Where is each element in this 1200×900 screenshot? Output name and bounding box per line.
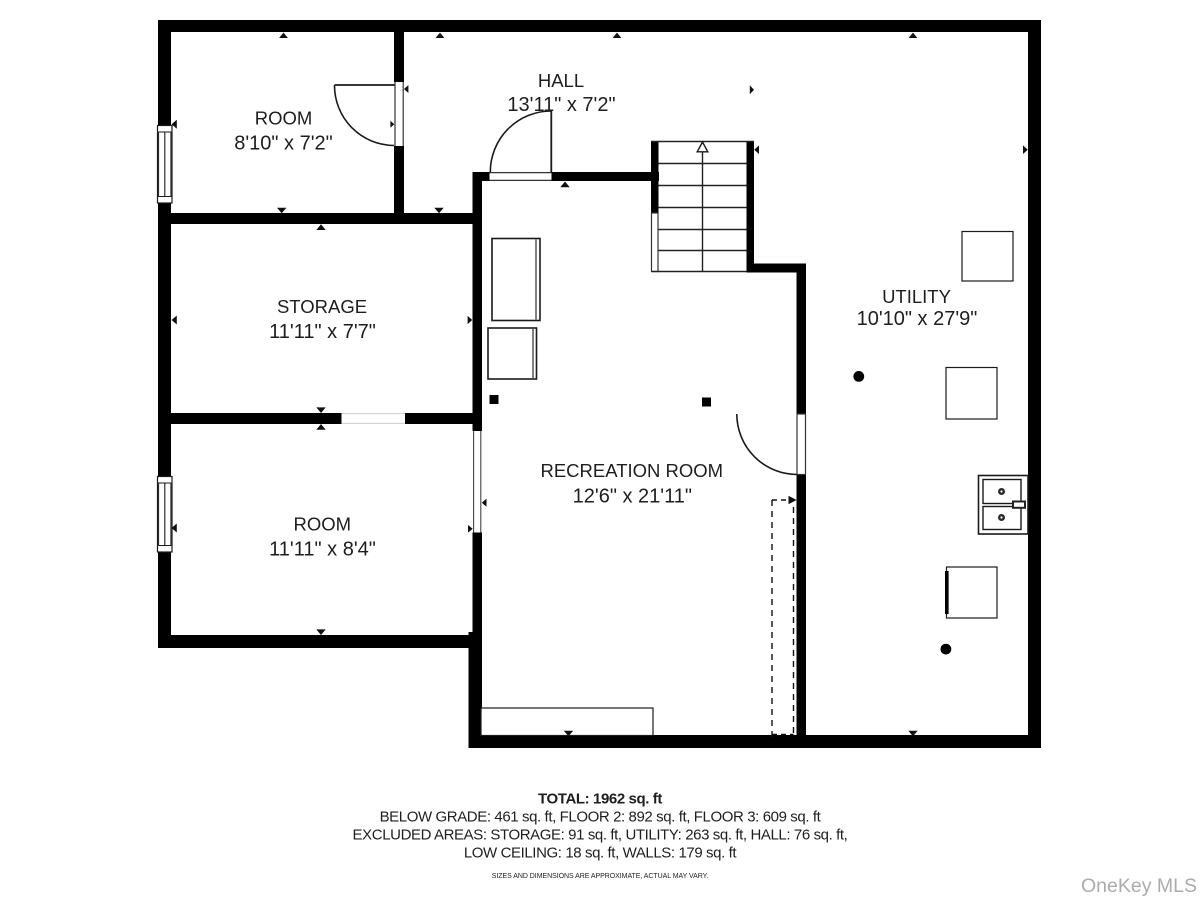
svg-text:BELOW GRADE: 461 sq. ft, FLOOR: BELOW GRADE: 461 sq. ft, FLOOR 2: 892 sq… (380, 809, 822, 826)
svg-text:11'11" x 7'7": 11'11" x 7'7" (269, 321, 376, 343)
svg-text:ROOM: ROOM (255, 108, 313, 129)
svg-text:8'10" x 7'2": 8'10" x 7'2" (234, 133, 333, 155)
svg-text:11'11" x 8'4": 11'11" x 8'4" (269, 538, 376, 560)
svg-text:10'10" x 27'9": 10'10" x 27'9" (857, 308, 978, 330)
svg-text:12'6" x 21'11": 12'6" x 21'11" (573, 485, 692, 507)
svg-text:LOW CEILING: 18 sq. ft, WALLS:: LOW CEILING: 18 sq. ft, WALLS: 179 sq. f… (464, 845, 738, 862)
svg-text:ROOM: ROOM (294, 514, 352, 535)
svg-text:13'11" x 7'2": 13'11" x 7'2" (507, 94, 615, 116)
svg-text:HALL: HALL (538, 70, 584, 91)
svg-text:UTILITY: UTILITY (882, 286, 951, 307)
svg-text:STORAGE: STORAGE (277, 296, 367, 317)
svg-text:OneKey MLS: OneKey MLS (1081, 875, 1197, 897)
svg-text:RECREATION ROOM: RECREATION ROOM (540, 460, 723, 481)
svg-text:TOTAL: 1962 sq. ft: TOTAL: 1962 sq. ft (538, 791, 662, 808)
svg-text:EXCLUDED AREAS: STORAGE: 91 sq: EXCLUDED AREAS: STORAGE: 91 sq. ft, UTIL… (353, 827, 848, 844)
svg-text:SIZES AND DIMENSIONS ARE APPRO: SIZES AND DIMENSIONS ARE APPROXIMATE, AC… (492, 873, 709, 880)
